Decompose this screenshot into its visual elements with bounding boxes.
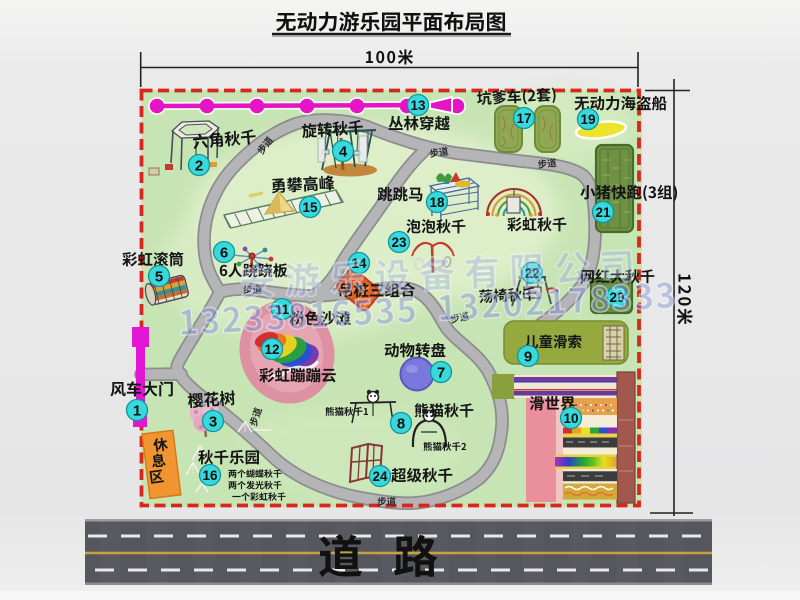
svg-text:17: 17 xyxy=(516,111,531,126)
svg-text:10: 10 xyxy=(563,411,578,426)
svg-text:16: 16 xyxy=(202,468,218,483)
svg-text:12: 12 xyxy=(264,342,279,357)
svg-text:4: 4 xyxy=(339,143,348,160)
svg-text:21: 21 xyxy=(595,205,611,220)
svg-text:3: 3 xyxy=(209,413,217,430)
svg-text:13: 13 xyxy=(410,98,426,113)
svg-text:23: 23 xyxy=(391,235,407,250)
svg-text:2: 2 xyxy=(195,157,203,174)
svg-text:15: 15 xyxy=(302,200,318,215)
svg-text:6: 6 xyxy=(220,244,228,261)
svg-text:8: 8 xyxy=(397,415,405,432)
svg-text:9: 9 xyxy=(524,348,532,365)
svg-text:1: 1 xyxy=(133,402,141,419)
svg-text:18: 18 xyxy=(429,195,445,210)
svg-text:24: 24 xyxy=(372,469,388,484)
svg-text:5: 5 xyxy=(155,268,163,285)
svg-text:19: 19 xyxy=(580,112,595,127)
svg-text:7: 7 xyxy=(437,364,445,381)
